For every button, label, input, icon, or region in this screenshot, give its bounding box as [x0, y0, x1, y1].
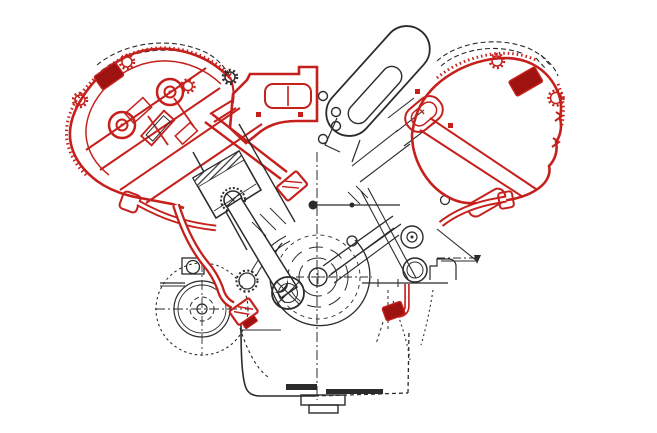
datum-mark-large — [309, 201, 318, 210]
spark-plug — [141, 111, 174, 146]
drain-plug — [301, 395, 345, 413]
block-hatching — [252, 186, 368, 236]
big-end-bearing — [272, 277, 304, 309]
engine-cross-section-figure — [0, 0, 657, 433]
accessory-pulley — [403, 258, 427, 282]
washer-right-cover-top — [490, 54, 504, 68]
engine-drawing-canvas — [0, 0, 657, 433]
oil-line-right — [376, 284, 407, 344]
right-cam-cover — [400, 53, 563, 224]
ignition-coil-block — [509, 67, 543, 97]
intake-plenum-duct — [317, 17, 440, 162]
pan-lip — [326, 389, 383, 394]
engine-mount-bracket — [362, 229, 481, 287]
washer-left-top — [120, 55, 134, 69]
valve-springs — [125, 98, 197, 145]
oil-union-right — [382, 301, 406, 321]
cam-cover-boss — [94, 62, 124, 90]
pan-weld-band — [286, 384, 317, 390]
intake-runner — [210, 67, 317, 143]
datum-mark-small — [350, 203, 355, 208]
centerlines — [309, 152, 401, 400]
breather-pipe — [441, 191, 514, 224]
inspection-plate — [400, 91, 447, 137]
oil-union-left — [229, 298, 262, 331]
